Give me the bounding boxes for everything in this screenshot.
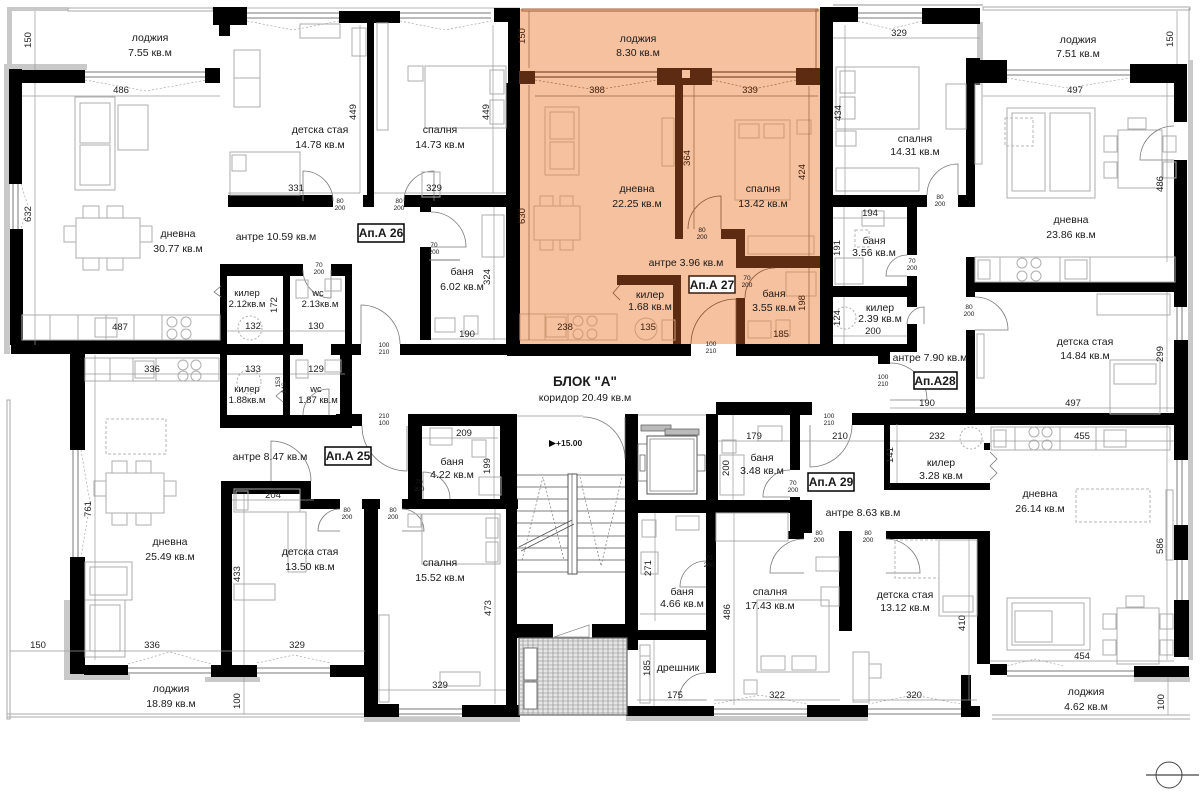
- svg-text:килер: килер: [636, 289, 664, 301]
- svg-text:7.55 кв.м: 7.55 кв.м: [128, 47, 172, 59]
- svg-text:2.12кв.м: 2.12кв.м: [229, 299, 266, 310]
- svg-text:18.89 кв.м: 18.89 кв.м: [146, 698, 196, 710]
- svg-text:191: 191: [832, 240, 843, 256]
- svg-text:455: 455: [1074, 431, 1090, 442]
- svg-text:13.50 кв.м: 13.50 кв.м: [285, 561, 335, 573]
- svg-text:-146: -146: [281, 382, 288, 395]
- svg-text:486: 486: [722, 604, 733, 620]
- svg-text:дневна: дневна: [1023, 488, 1058, 500]
- svg-text:80: 80: [395, 198, 403, 205]
- svg-text:150: 150: [30, 640, 46, 651]
- svg-text:449: 449: [348, 104, 359, 120]
- svg-text:200: 200: [314, 269, 325, 276]
- svg-text:200: 200: [414, 486, 425, 493]
- svg-text:дрешник: дрешник: [657, 662, 700, 674]
- svg-text:килер: килер: [234, 288, 260, 299]
- svg-text:630: 630: [517, 208, 528, 224]
- svg-text:331: 331: [288, 183, 304, 194]
- svg-text:70: 70: [743, 275, 751, 282]
- svg-text:200: 200: [863, 537, 874, 544]
- svg-text:+15.00: +15.00: [556, 438, 583, 448]
- svg-text:13.12 кв.м: 13.12 кв.м: [880, 602, 930, 614]
- svg-text:антре 8.63 кв.м: антре 8.63 кв.м: [826, 507, 901, 519]
- svg-text:лоджия: лоджия: [132, 32, 169, 44]
- svg-text:100: 100: [232, 693, 243, 709]
- svg-text:454: 454: [1074, 651, 1090, 662]
- svg-text:3.56 кв.м: 3.56 кв.м: [852, 247, 896, 259]
- svg-text:wc: wc: [311, 288, 324, 299]
- svg-text:антре 7.90 кв.м: антре 7.90 кв.м: [893, 352, 968, 364]
- svg-text:баня: баня: [450, 266, 473, 278]
- svg-text:388: 388: [589, 85, 605, 96]
- svg-text:лоджия: лоджия: [620, 33, 657, 45]
- svg-text:спалня: спалня: [746, 183, 780, 195]
- svg-text:15.52 кв.м: 15.52 кв.м: [415, 572, 465, 584]
- svg-text:299: 299: [1155, 346, 1166, 362]
- svg-text:200: 200: [697, 234, 708, 241]
- svg-text:133: 133: [245, 364, 261, 375]
- svg-text:336: 336: [144, 364, 160, 375]
- svg-text:дневна: дневна: [620, 183, 655, 195]
- svg-text:200: 200: [935, 201, 946, 208]
- svg-text:4.62 кв.м: 4.62 кв.м: [1064, 701, 1108, 713]
- svg-text:632: 632: [23, 206, 34, 222]
- svg-text:194: 194: [862, 208, 878, 219]
- svg-text:80: 80: [815, 530, 823, 537]
- svg-text:70: 70: [789, 480, 797, 487]
- svg-text:271: 271: [643, 560, 654, 576]
- svg-text:153: 153: [275, 376, 282, 387]
- svg-text:433: 433: [232, 566, 243, 582]
- svg-text:4.66 кв.м: 4.66 кв.м: [660, 598, 704, 610]
- svg-text:172: 172: [269, 297, 280, 313]
- svg-text:199: 199: [482, 458, 493, 474]
- svg-text:210: 210: [379, 413, 390, 420]
- svg-text:129: 129: [308, 364, 324, 375]
- svg-text:124: 124: [832, 310, 843, 326]
- svg-text:спалня: спалня: [898, 133, 932, 145]
- svg-text:3.55 кв.м: 3.55 кв.м: [752, 302, 796, 314]
- svg-text:132: 132: [245, 321, 261, 332]
- svg-text:3.48 кв.м: 3.48 кв.м: [740, 465, 784, 477]
- svg-text:килер: килер: [234, 384, 260, 395]
- svg-text:30.77 кв.м: 30.77 кв.м: [153, 243, 203, 255]
- svg-text:баня: баня: [762, 288, 785, 300]
- svg-text:210: 210: [706, 348, 717, 355]
- svg-text:185: 185: [642, 660, 653, 676]
- svg-text:2.39 кв.м: 2.39 кв.м: [858, 313, 902, 325]
- svg-text:детска стая: детска стая: [292, 124, 349, 136]
- svg-text:баня: баня: [440, 456, 463, 468]
- svg-text:70: 70: [705, 555, 713, 562]
- svg-text:баня: баня: [862, 235, 885, 247]
- svg-text:80: 80: [698, 227, 706, 234]
- svg-text:473: 473: [483, 600, 494, 616]
- svg-text:23.86 кв.м: 23.86 кв.м: [1046, 229, 1096, 241]
- svg-text:70: 70: [315, 262, 323, 269]
- svg-text:204: 204: [265, 490, 281, 501]
- svg-text:200: 200: [742, 282, 753, 289]
- svg-text:7.51 кв.м: 7.51 кв.м: [1056, 48, 1100, 60]
- svg-text:761: 761: [83, 501, 94, 517]
- svg-text:антре 8.47 кв.м: антре 8.47 кв.м: [233, 451, 308, 463]
- svg-text:70: 70: [415, 479, 423, 486]
- svg-text:1.68 кв.м: 1.68 кв.м: [628, 301, 672, 313]
- svg-text:209: 209: [456, 428, 472, 439]
- svg-text:баня: баня: [750, 452, 773, 464]
- svg-text:баня: баня: [670, 586, 693, 598]
- svg-text:100: 100: [1156, 694, 1167, 710]
- svg-text:спалня: спалня: [753, 586, 787, 598]
- svg-text:410: 410: [957, 615, 968, 631]
- svg-text:4.22 кв.м: 4.22 кв.м: [430, 469, 474, 481]
- svg-text:100: 100: [379, 342, 390, 349]
- svg-text:190: 190: [459, 329, 475, 340]
- svg-text:17.43 кв.м: 17.43 кв.м: [745, 600, 795, 612]
- svg-text:200: 200: [429, 249, 440, 256]
- svg-text:449: 449: [481, 104, 492, 120]
- svg-text:25.49 кв.м: 25.49 кв.м: [145, 551, 195, 563]
- svg-text:8.30 кв.м: 8.30 кв.м: [616, 47, 660, 59]
- svg-text:13.42 кв.м: 13.42 кв.м: [738, 198, 788, 210]
- svg-text:дневна: дневна: [153, 536, 188, 548]
- svg-text:спалня: спалня: [423, 124, 457, 136]
- svg-text:200: 200: [865, 326, 881, 337]
- svg-text:6.02 кв.м: 6.02 кв.м: [440, 281, 484, 293]
- svg-text:200: 200: [814, 537, 825, 544]
- svg-text:70: 70: [908, 258, 916, 265]
- svg-text:14.73 кв.м: 14.73 кв.м: [415, 139, 465, 151]
- svg-text:185: 185: [773, 329, 789, 340]
- svg-text:336: 336: [144, 640, 160, 651]
- svg-text:100: 100: [379, 420, 390, 427]
- svg-text:80: 80: [936, 194, 944, 201]
- svg-text:wc: wc: [309, 384, 322, 395]
- svg-text:100: 100: [824, 413, 835, 420]
- svg-text:лоджия: лоджия: [1060, 34, 1097, 46]
- svg-text:200: 200: [394, 205, 405, 212]
- svg-text:дневна: дневна: [1054, 214, 1089, 226]
- svg-text:141: 141: [885, 447, 896, 463]
- svg-text:80: 80: [389, 507, 397, 514]
- svg-text:135: 135: [640, 322, 656, 333]
- svg-text:лоджия: лоджия: [1068, 686, 1105, 698]
- svg-text:329: 329: [891, 28, 907, 39]
- svg-text:329: 329: [289, 640, 305, 651]
- svg-text:200: 200: [964, 311, 975, 318]
- svg-text:70: 70: [430, 242, 438, 249]
- svg-text:210: 210: [878, 381, 889, 388]
- svg-text:100: 100: [878, 374, 889, 381]
- svg-text:22.25 кв.м: 22.25 кв.м: [612, 198, 662, 210]
- svg-text:Ап.А 26: Ап.А 26: [359, 226, 404, 240]
- svg-text:1.88кв.м: 1.88кв.м: [229, 395, 266, 406]
- svg-text:150: 150: [23, 32, 34, 48]
- svg-text:179: 179: [746, 431, 762, 442]
- svg-text:232: 232: [929, 431, 945, 442]
- svg-text:200: 200: [721, 460, 732, 476]
- svg-text:487: 487: [112, 322, 128, 333]
- svg-text:26.14 кв.м: 26.14 кв.м: [1015, 503, 1065, 515]
- svg-text:210: 210: [824, 420, 835, 427]
- svg-text:80: 80: [965, 304, 973, 311]
- svg-text:586: 586: [1155, 538, 1166, 554]
- svg-text:497: 497: [1065, 398, 1081, 409]
- svg-text:Ап.А 27: Ап.А 27: [690, 278, 735, 292]
- svg-text:320: 320: [906, 690, 922, 701]
- svg-text:364: 364: [682, 150, 693, 166]
- svg-text:200: 200: [342, 514, 353, 521]
- svg-text:детска стая: детска стая: [877, 589, 934, 601]
- svg-text:дневна: дневна: [161, 228, 196, 240]
- svg-text:Ап.А 29: Ап.А 29: [809, 475, 854, 489]
- svg-text:130: 130: [308, 321, 324, 332]
- svg-text:200: 200: [704, 562, 715, 569]
- svg-text:спалня: спалня: [423, 557, 457, 569]
- svg-text:80: 80: [864, 530, 872, 537]
- svg-text:100: 100: [706, 341, 717, 348]
- svg-text:329: 329: [432, 680, 448, 691]
- svg-text:антре 10.59 кв.м: антре 10.59 кв.м: [236, 231, 317, 243]
- svg-text:антре 3.96 кв.м: антре 3.96 кв.м: [649, 257, 724, 269]
- svg-text:424: 424: [797, 164, 808, 180]
- svg-text:210: 210: [832, 431, 848, 442]
- svg-text:329: 329: [426, 183, 442, 194]
- svg-text:Ап.А 25: Ап.А 25: [326, 449, 371, 463]
- svg-text:486: 486: [1155, 176, 1166, 192]
- svg-text:324: 324: [482, 269, 493, 285]
- svg-text:лоджия: лоджия: [153, 683, 190, 695]
- svg-text:14.31 кв.м: 14.31 кв.м: [890, 146, 940, 158]
- svg-text:210: 210: [379, 349, 390, 356]
- svg-text:2.13кв.м: 2.13кв.м: [302, 299, 339, 310]
- svg-text:190: 190: [919, 398, 935, 409]
- svg-text:14.84 кв.м: 14.84 кв.м: [1060, 350, 1110, 362]
- svg-text:200: 200: [788, 487, 799, 494]
- svg-text:килер: килер: [927, 457, 955, 469]
- svg-text:детска стая: детска стая: [282, 546, 339, 558]
- svg-text:80: 80: [336, 198, 344, 205]
- svg-text:200: 200: [335, 205, 346, 212]
- svg-text:1.87 кв.м: 1.87 кв.м: [298, 395, 338, 406]
- svg-text:80: 80: [343, 507, 351, 514]
- svg-text:198: 198: [797, 295, 808, 311]
- svg-text:150: 150: [1165, 31, 1176, 47]
- svg-text:200: 200: [907, 265, 918, 272]
- svg-text:150: 150: [517, 28, 528, 44]
- svg-text:детска стая: детска стая: [1057, 336, 1114, 348]
- svg-text:БЛОК "А": БЛОК "А": [553, 374, 617, 389]
- svg-text:коридор 20.49 кв.м: коридор 20.49 кв.м: [539, 392, 631, 404]
- svg-text:200: 200: [388, 514, 399, 521]
- svg-text:175: 175: [667, 690, 683, 701]
- svg-text:3.28 кв.м: 3.28 кв.м: [919, 470, 963, 482]
- svg-text:434: 434: [833, 105, 844, 121]
- svg-text:Ап.А28: Ап.А28: [914, 374, 956, 388]
- svg-text:14.78 кв.м: 14.78 кв.м: [295, 139, 345, 151]
- svg-text:238: 238: [557, 322, 573, 333]
